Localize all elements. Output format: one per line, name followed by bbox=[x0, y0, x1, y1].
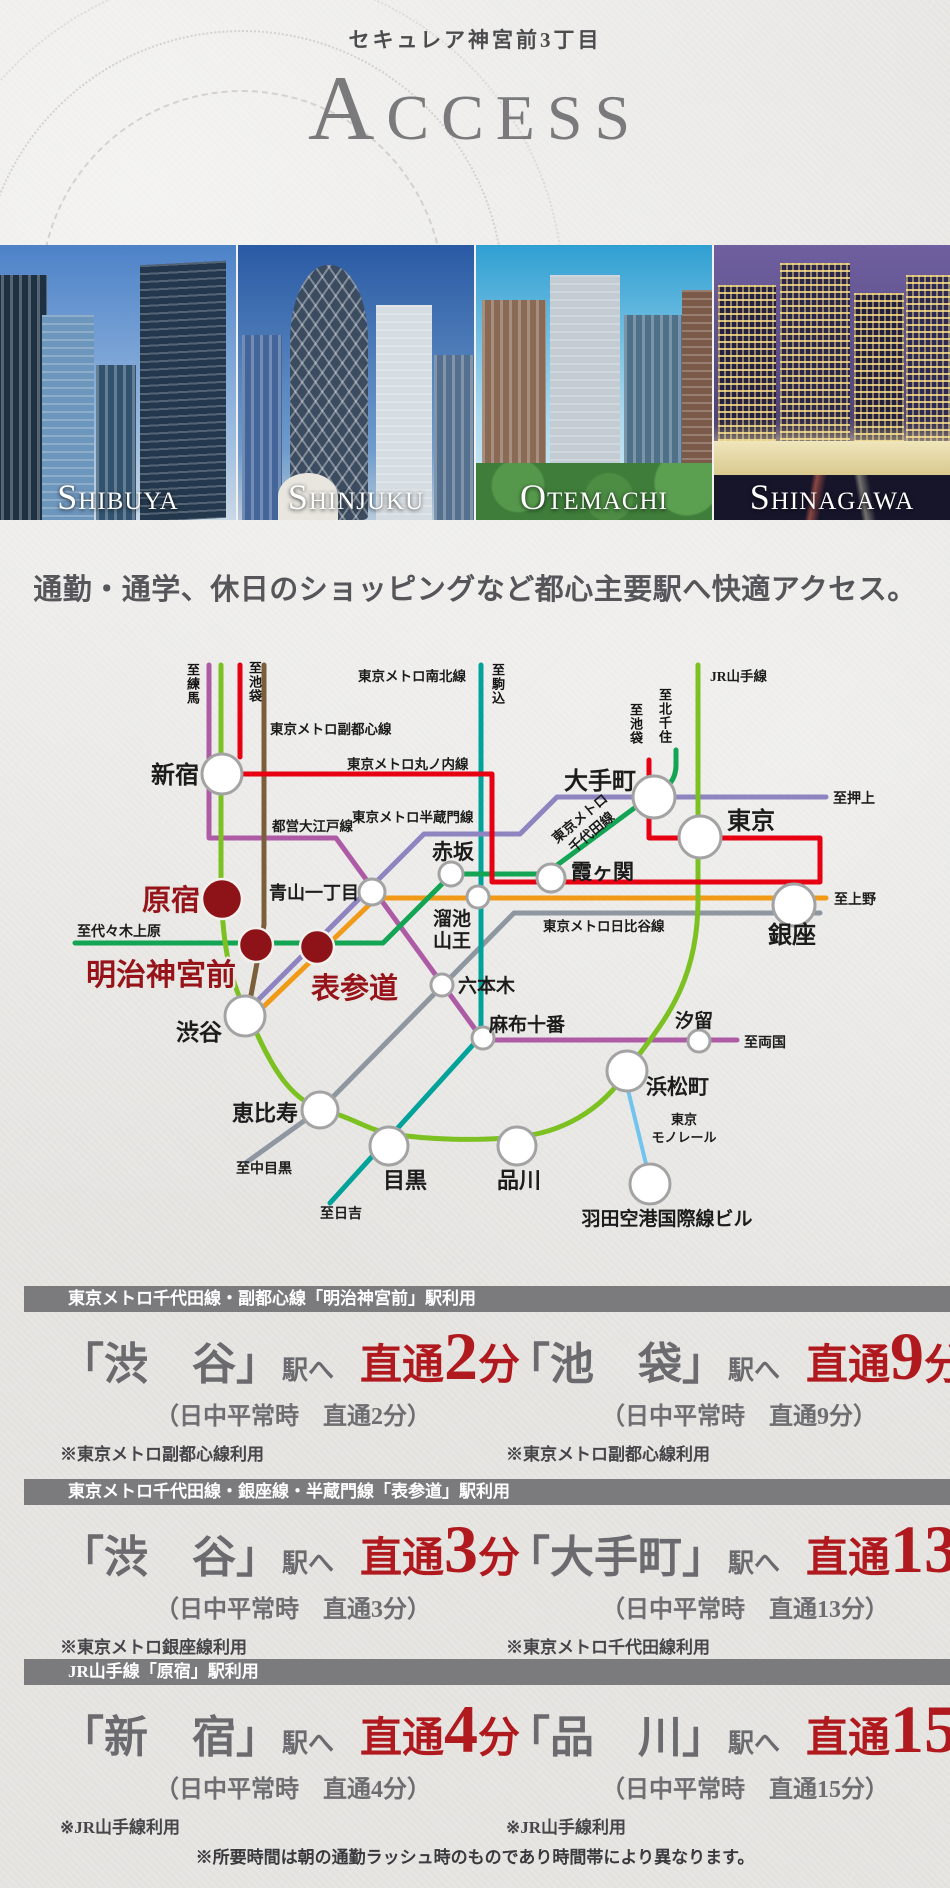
bracket-close: 」 bbox=[236, 1328, 280, 1392]
bracket-close: 」 bbox=[682, 1701, 726, 1765]
line-used-note: ※東京メトロ千代田線利用 bbox=[506, 1633, 890, 1658]
label-to-yoyogi-uehara: 至代々木上原 bbox=[77, 923, 161, 940]
station-roppongi bbox=[431, 974, 453, 996]
property-name: セキュレア神宮前3丁目 bbox=[0, 24, 950, 54]
label-hibiya-line: 東京メトロ日比谷線 bbox=[543, 918, 665, 934]
minutes-value: 9 bbox=[890, 1322, 924, 1390]
destination-station: 渋 谷 bbox=[104, 1521, 236, 1585]
to-station-suffix: 駅へ bbox=[728, 1350, 780, 1387]
station-tameike-sanno bbox=[467, 886, 489, 908]
label-to-nerima: 至練馬 bbox=[183, 663, 202, 705]
label-hamamatsucho: 浜松町 bbox=[646, 1075, 709, 1099]
tagline: 通勤・通学、休日のショッピングなど都心主要駅へ快適アクセス。 bbox=[0, 566, 950, 608]
station-shinjuku bbox=[202, 754, 242, 794]
label-hanzomon-line: 東京メトロ半蔵門線 bbox=[352, 809, 474, 825]
station-shinagawa bbox=[498, 1127, 536, 1165]
destination-station: 新 宿 bbox=[104, 1701, 236, 1765]
access-item: 「池 袋」駅へ直通9分 （日中平常時 直通9分） ※東京メトロ副都心線利用 bbox=[448, 1322, 890, 1465]
bracket-close: 」 bbox=[682, 1328, 726, 1392]
access-section-harajuku: JR山手線「原宿」駅利用 「新 宿」駅へ直通4分 （日中平常時 直通4分） ※J… bbox=[0, 1659, 950, 1839]
line-used-note: ※JR山手線利用 bbox=[60, 1813, 448, 1838]
daytime-note: （日中平常時 直通9分） bbox=[601, 1396, 890, 1431]
bracket-open: 「 bbox=[506, 1701, 550, 1765]
bracket-open: 「 bbox=[60, 1328, 104, 1392]
direct-label: 直通 bbox=[360, 1524, 444, 1585]
photo-shinjuku: Shinjuku bbox=[236, 245, 474, 520]
label-to-oshiage: 至押上 bbox=[833, 790, 875, 807]
photo-shinagawa: Shinagawa bbox=[712, 245, 950, 520]
label-kasumigaseki: 霞ヶ関 bbox=[571, 860, 634, 884]
daytime-note: （日中平常時 直通3分） bbox=[155, 1589, 448, 1624]
time-disclaimer: ※所要時間は朝の通勤ラッシュ時のものであり時間帯により異なります。 bbox=[0, 1843, 950, 1868]
station-hamamatsucho bbox=[607, 1051, 647, 1091]
section-heading-bar: 東京メトロ千代田線・副都心線「明治神宮前」駅利用 bbox=[24, 1286, 950, 1312]
bracket-open: 「 bbox=[60, 1701, 104, 1765]
label-roppongi: 六本木 bbox=[458, 974, 516, 997]
photo-caption-shibuya: Shibuya bbox=[0, 476, 236, 518]
label-fukutoshin-line: 東京メトロ副都心線 bbox=[270, 721, 392, 737]
label-to-nakameguro: 至中目黒 bbox=[236, 1160, 292, 1177]
label-harajuku: 原宿 bbox=[142, 883, 200, 917]
label-shibuya: 渋谷 bbox=[176, 1020, 223, 1045]
access-item: 「新 宿」駅へ直通4分 （日中平常時 直通4分） ※JR山手線利用 bbox=[0, 1695, 448, 1838]
photo-caption-otemachi: Otemachi bbox=[476, 476, 712, 518]
label-tokyo: 東京 bbox=[727, 807, 775, 835]
station-shiodome bbox=[688, 1030, 710, 1052]
section-heading-bar: JR山手線「原宿」駅利用 bbox=[24, 1659, 950, 1685]
bracket-open: 「 bbox=[60, 1521, 104, 1585]
label-shinjuku: 新宿 bbox=[151, 761, 199, 789]
station-otemachi bbox=[633, 776, 675, 818]
daytime-note: （日中平常時 直通13分） bbox=[601, 1589, 890, 1624]
label-omotesando: 表参道 bbox=[311, 971, 398, 1005]
to-station-suffix: 駅へ bbox=[728, 1543, 780, 1580]
station-aoyama-itchome bbox=[359, 879, 385, 905]
label-to-ueno: 至上野 bbox=[834, 892, 876, 908]
destination-station: 池 袋 bbox=[550, 1328, 682, 1392]
to-station-suffix: 駅へ bbox=[282, 1350, 334, 1387]
direct-label: 直通 bbox=[806, 1331, 890, 1392]
label-to-hiyoshi: 至日吉 bbox=[320, 1205, 362, 1222]
to-station-suffix: 駅へ bbox=[728, 1723, 780, 1760]
label-aoyama-itchome: 青山一丁目 bbox=[269, 883, 359, 903]
station-haneda bbox=[630, 1164, 670, 1204]
direct-label: 直通 bbox=[806, 1704, 890, 1765]
label-to-komagome: 至駒込 bbox=[488, 663, 507, 705]
minutes-unit: 分 bbox=[924, 1331, 950, 1392]
label-akasaka: 赤坂 bbox=[432, 840, 475, 864]
photo-caption-shinagawa: Shinagawa bbox=[714, 476, 950, 518]
daytime-note: （日中平常時 直通2分） bbox=[155, 1396, 448, 1431]
to-station-suffix: 駅へ bbox=[282, 1723, 334, 1760]
transit-map: 新宿 大手町 東京 銀座 渋谷 恵比寿 目黒 品川 浜松町 霞ヶ関 赤坂 青山一… bbox=[0, 630, 950, 1250]
bracket-open: 「 bbox=[506, 1328, 550, 1392]
access-item: 「渋 谷」駅へ直通3分 （日中平常時 直通3分） ※東京メトロ銀座線利用 bbox=[0, 1515, 448, 1658]
bracket-close: 」 bbox=[236, 1701, 280, 1765]
label-shinagawa: 品川 bbox=[497, 1168, 541, 1193]
access-item: 「品 川」駅へ直通15分 （日中平常時 直通15分） ※JR山手線利用 bbox=[448, 1695, 890, 1838]
access-item: 「渋 谷」駅へ直通2分 （日中平常時 直通2分） ※東京メトロ副都心線利用 bbox=[0, 1322, 448, 1465]
label-tameike-2: 山王 bbox=[433, 930, 471, 952]
photo-shibuya: Shibuya bbox=[0, 245, 236, 520]
label-monorail-1: 東京 bbox=[671, 1112, 697, 1127]
station-tokyo bbox=[679, 816, 721, 858]
label-haneda: 羽田空港国際線ビル bbox=[581, 1207, 752, 1230]
header: セキュレア神宮前3丁目 Access bbox=[0, 0, 950, 245]
access-section-omotesando: 東京メトロ千代田線・銀座線・半蔵門線「表参道」駅利用 「渋 谷」駅へ直通3分 （… bbox=[0, 1479, 950, 1659]
label-oedo-line: 都営大江戸線 bbox=[271, 818, 353, 834]
destination-station: 大手町 bbox=[550, 1521, 682, 1585]
label-ginza: 銀座 bbox=[768, 921, 816, 949]
destination-station: 品 川 bbox=[550, 1701, 682, 1765]
station-akasaka bbox=[439, 862, 463, 886]
access-item: 「大手町」駅へ直通13分 （日中平常時 直通13分） ※東京メトロ千代田線利用 bbox=[448, 1515, 890, 1658]
label-meguro: 目黒 bbox=[383, 1168, 427, 1193]
label-to-ikebukuro-east: 至池袋 bbox=[626, 703, 645, 745]
station-kasumigaseki bbox=[537, 864, 565, 892]
city-photo-strip: Shibuya Shinjuku Otemachi Shinagawa bbox=[0, 245, 950, 520]
station-meguro bbox=[370, 1127, 408, 1165]
access-section-meiji-jingumae: 東京メトロ千代田線・副都心線「明治神宮前」駅利用 「渋 谷」駅へ直通2分 （日中… bbox=[0, 1286, 950, 1466]
station-meiji-jingumae-highlight bbox=[239, 928, 273, 962]
direct-label: 直通 bbox=[806, 1524, 890, 1585]
minutes-value: 15 bbox=[890, 1695, 950, 1763]
station-shibuya bbox=[225, 996, 265, 1036]
station-ebisu bbox=[302, 1092, 338, 1128]
label-to-ryogoku: 至両国 bbox=[744, 1035, 786, 1051]
label-azabujuban: 麻布十番 bbox=[488, 1013, 566, 1036]
label-shiodome: 汐留 bbox=[675, 1009, 713, 1032]
station-omotesando-highlight bbox=[300, 930, 334, 964]
label-tameike-1: 溜池 bbox=[433, 907, 471, 930]
tokyo-monorail-line bbox=[628, 1090, 647, 1168]
marunouchi-line bbox=[240, 665, 820, 882]
label-meiji-jingumae: 明治神宮前 bbox=[86, 959, 236, 992]
label-to-kitasenju: 至北千住 bbox=[655, 688, 674, 744]
direct-label: 直通 bbox=[360, 1704, 444, 1765]
to-station-suffix: 駅へ bbox=[282, 1543, 334, 1580]
bracket-open: 「 bbox=[506, 1521, 550, 1585]
bracket-close: 」 bbox=[682, 1521, 726, 1585]
line-used-note: ※JR山手線利用 bbox=[506, 1813, 890, 1838]
line-used-note: ※東京メトロ副都心線利用 bbox=[60, 1440, 448, 1465]
destination-station: 渋 谷 bbox=[104, 1328, 236, 1392]
daytime-note: （日中平常時 直通4分） bbox=[155, 1769, 448, 1804]
minutes-value: 13 bbox=[890, 1515, 950, 1583]
label-yamanote-line: JR山手線 bbox=[710, 668, 767, 684]
access-flyer-page: セキュレア神宮前3丁目 Access Shibuya Shinjuku Otem… bbox=[0, 0, 950, 1888]
daytime-note: （日中平常時 直通15分） bbox=[601, 1769, 890, 1804]
label-monorail-2: モノレール bbox=[651, 1130, 716, 1145]
photo-otemachi: Otemachi bbox=[474, 245, 712, 520]
photo-caption-shinjuku: Shinjuku bbox=[238, 476, 474, 518]
label-ebisu: 恵比寿 bbox=[232, 1101, 298, 1126]
section-heading-bar: 東京メトロ千代田線・銀座線・半蔵門線「表参道」駅利用 bbox=[24, 1479, 950, 1505]
label-namboku-line: 東京メトロ南北線 bbox=[358, 668, 466, 684]
page-title: Access bbox=[0, 58, 950, 159]
station-harajuku-highlight bbox=[202, 879, 242, 919]
station-facade bbox=[714, 441, 950, 475]
bracket-close: 」 bbox=[236, 1521, 280, 1585]
line-used-note: ※東京メトロ副都心線利用 bbox=[506, 1440, 890, 1465]
station-ginza bbox=[773, 884, 815, 926]
label-marunouchi-line: 東京メトロ丸ノ内線 bbox=[347, 756, 469, 772]
line-used-note: ※東京メトロ銀座線利用 bbox=[60, 1633, 448, 1658]
label-to-ikebukuro-west: 至池袋 bbox=[245, 661, 264, 703]
direct-label: 直通 bbox=[360, 1331, 444, 1392]
